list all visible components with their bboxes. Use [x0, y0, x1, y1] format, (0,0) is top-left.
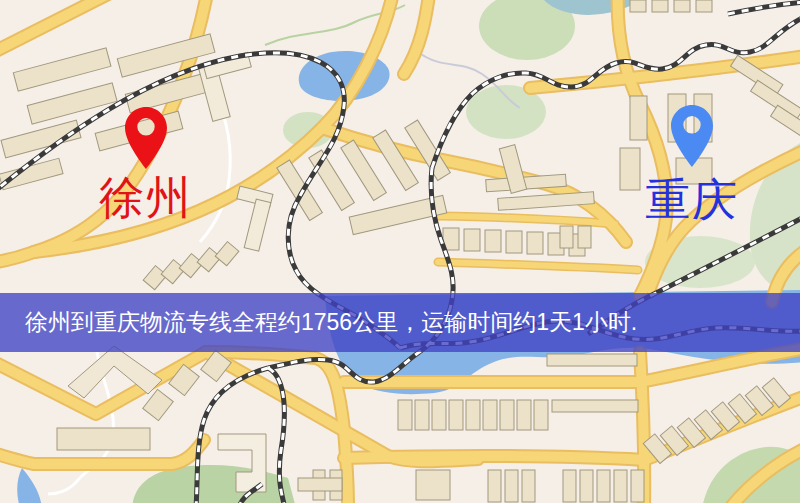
map-image	[0, 0, 800, 503]
origin-map-pin-icon[interactable]	[123, 106, 169, 170]
destination-map-pin-icon[interactable]	[669, 104, 715, 168]
route-info-banner: 徐州到重庆物流专线全程约1756公里，运输时间约1天1小时.	[0, 293, 800, 352]
route-info-text: 徐州到重庆物流专线全程约1756公里，运输时间约1天1小时.	[0, 307, 637, 338]
pin-shape	[671, 105, 713, 167]
origin-city-label: 徐州	[99, 176, 193, 221]
logistics-route-map: 徐州 重庆 徐州到重庆物流专线全程约1756公里，运输时间约1天1小时.	[0, 0, 800, 503]
pin-shape	[125, 107, 167, 169]
destination-city-label: 重庆	[645, 178, 739, 223]
